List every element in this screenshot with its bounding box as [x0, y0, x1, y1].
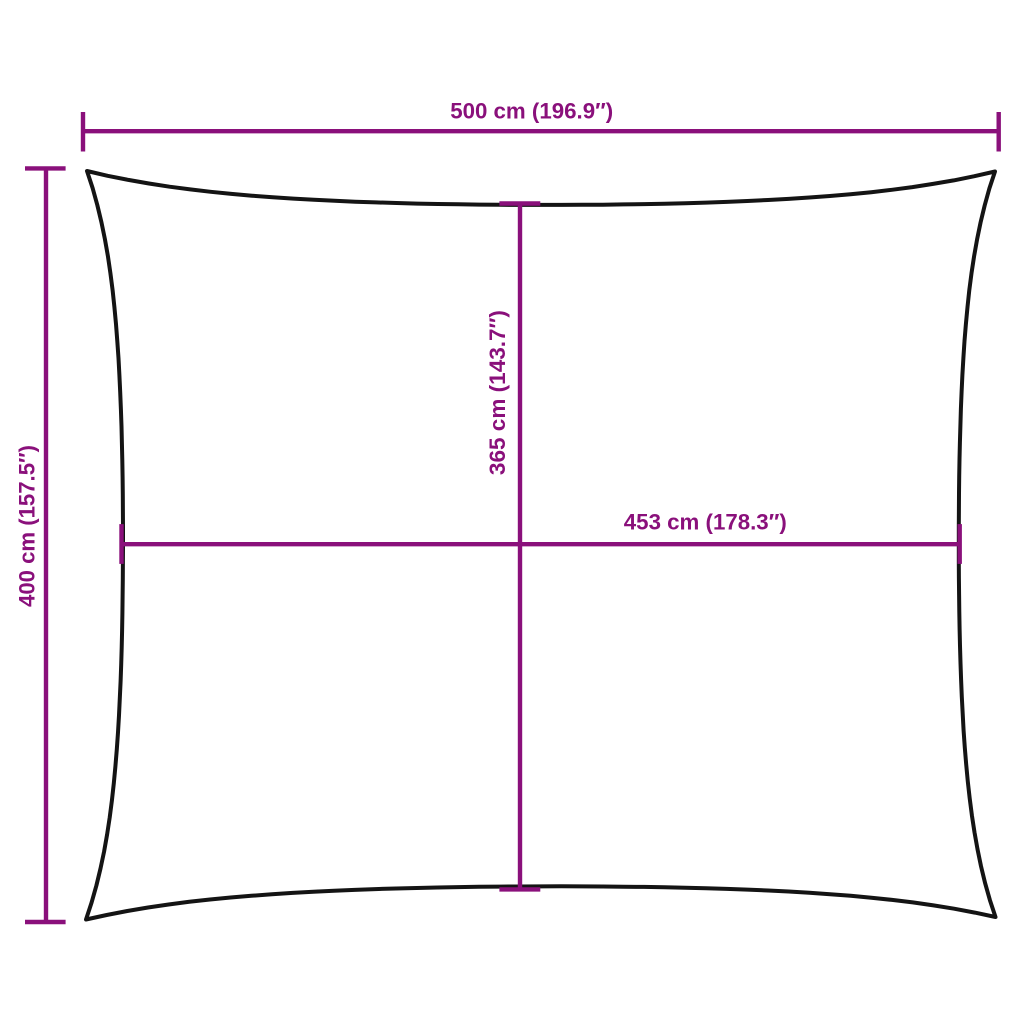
svg-text:400 cm (157.5″): 400 cm (157.5″): [15, 445, 40, 607]
svg-text:453 cm (178.3″): 453 cm (178.3″): [624, 509, 787, 534]
svg-text:500 cm (196.9″): 500 cm (196.9″): [450, 98, 613, 123]
svg-text:365 cm (143.7″): 365 cm (143.7″): [485, 310, 510, 475]
